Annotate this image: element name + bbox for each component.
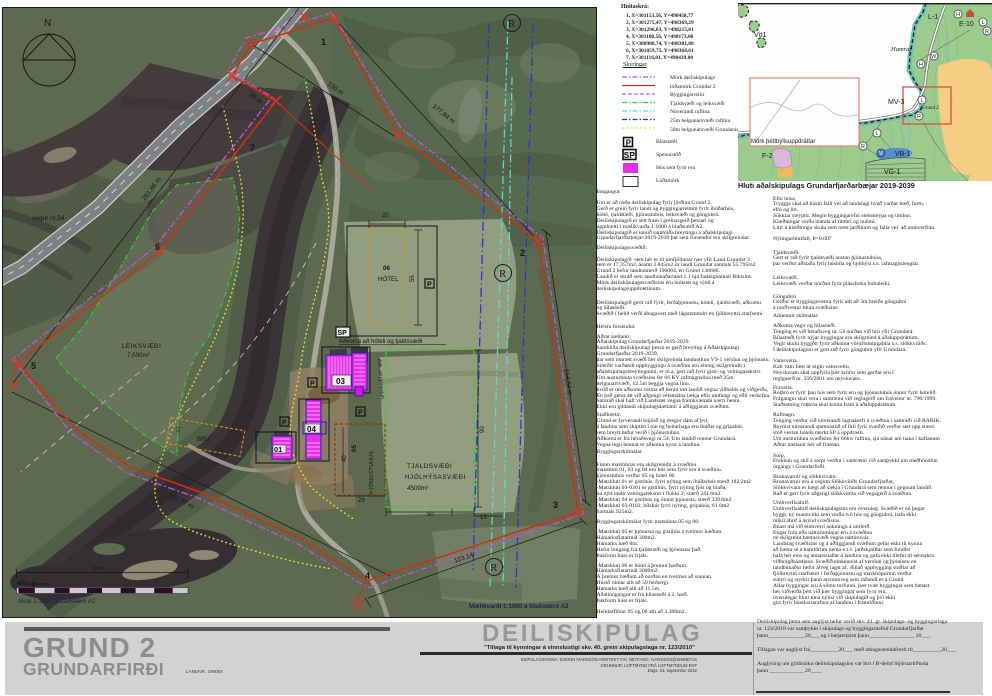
svg-text:P: P bbox=[626, 138, 632, 147]
svg-text:F-2: F-2 bbox=[762, 153, 773, 160]
svg-text:ÞJÓNUSTUHUS: ÞJÓNUSTUHUS bbox=[368, 451, 375, 494]
svg-text:6: 6 bbox=[155, 242, 160, 252]
svg-text:H: H bbox=[919, 62, 923, 68]
svg-text:TJALDSVÆÐI: TJALDSVÆÐI bbox=[407, 463, 452, 470]
svg-text:2: 2 bbox=[520, 248, 525, 258]
svg-text:SP: SP bbox=[624, 150, 636, 160]
svg-text:4: 4 bbox=[365, 571, 370, 581]
svg-text:20m: 20m bbox=[18, 579, 27, 584]
svg-text:P: P bbox=[310, 381, 315, 388]
svg-text:L: L bbox=[876, 131, 879, 137]
svg-text:L-1: L-1 bbox=[928, 14, 938, 21]
svg-text:Aðkoma að hóteli og tjaldsvæði: Aðkoma að hóteli og tjaldsvæði bbox=[339, 338, 422, 345]
svg-text:90: 90 bbox=[480, 426, 486, 433]
svg-text:E-10: E-10 bbox=[959, 21, 974, 28]
svg-text:R: R bbox=[861, 144, 865, 150]
svg-text:R: R bbox=[985, 29, 989, 35]
svg-text:Vö1: Vö1 bbox=[754, 32, 767, 39]
svg-text:50: 50 bbox=[427, 512, 434, 518]
svg-text:4500m²: 4500m² bbox=[407, 485, 428, 492]
svg-text:55: 55 bbox=[410, 275, 416, 282]
svg-text:P: P bbox=[358, 410, 363, 417]
svg-text:Grund 2: Grund 2 bbox=[922, 106, 939, 111]
svg-text:40: 40 bbox=[342, 455, 348, 462]
svg-text:Mörk þéttbýlisuppdráttar: Mörk þéttbýlisuppdráttar bbox=[751, 139, 815, 145]
svg-text:03: 03 bbox=[336, 377, 345, 386]
svg-text:7: 7 bbox=[250, 143, 255, 153]
svg-text:H: H bbox=[956, 12, 960, 18]
svg-text:01: 01 bbox=[274, 445, 282, 454]
svg-text:VG-1: VG-1 bbox=[884, 169, 900, 176]
svg-text:SP: SP bbox=[338, 330, 348, 337]
svg-text:BRÚ: BRÚ bbox=[197, 436, 210, 443]
svg-text:R: R bbox=[499, 268, 507, 280]
svg-text:W: W bbox=[931, 54, 937, 60]
svg-text:R: R bbox=[508, 18, 516, 30]
svg-text:R: R bbox=[917, 114, 921, 120]
svg-text:VB-1: VB-1 bbox=[895, 151, 911, 158]
svg-text:vegur nr.54: vegur nr.54 bbox=[32, 215, 65, 222]
svg-text:N: N bbox=[44, 18, 51, 29]
svg-text:05: 05 bbox=[351, 444, 358, 452]
svg-text:Mælikvarði 1:1000 á blaðstærð: Mælikvarði 1:1000 á blaðstærð A2 bbox=[469, 603, 569, 610]
svg-text:HÓTEL: HÓTEL bbox=[378, 276, 399, 283]
svg-text:29: 29 bbox=[358, 498, 365, 504]
svg-text:V: V bbox=[879, 151, 883, 157]
svg-text:7,500m²: 7,500m² bbox=[127, 352, 150, 359]
svg-text:5: 5 bbox=[31, 361, 36, 371]
svg-text:P: P bbox=[282, 420, 287, 427]
svg-text:13: 13 bbox=[480, 515, 487, 521]
svg-text:100m: 100m bbox=[92, 566, 104, 571]
svg-text:LEIKSVÆÐI: LEIKSVÆÐI bbox=[122, 343, 161, 350]
svg-text:04: 04 bbox=[307, 425, 316, 434]
svg-text:1: 1 bbox=[321, 37, 326, 47]
svg-text:Hamrar: Hamrar bbox=[890, 46, 912, 53]
svg-text:MV-3: MV-3 bbox=[888, 99, 904, 106]
svg-text:3: 3 bbox=[553, 500, 558, 510]
svg-text:HJÓLHÝSASVÆÐI: HJÓLHÝSASVÆÐI bbox=[405, 472, 466, 481]
svg-text:06: 06 bbox=[383, 265, 390, 272]
svg-text:20: 20 bbox=[382, 213, 389, 219]
svg-text:L: L bbox=[982, 20, 985, 26]
svg-text:P: P bbox=[427, 282, 432, 289]
svg-text:R: R bbox=[490, 562, 498, 574]
svg-text:Skali 1:1000 á blaðstærð A2: Skali 1:1000 á blaðstærð A2 bbox=[18, 598, 96, 605]
svg-text:L: L bbox=[921, 98, 924, 104]
